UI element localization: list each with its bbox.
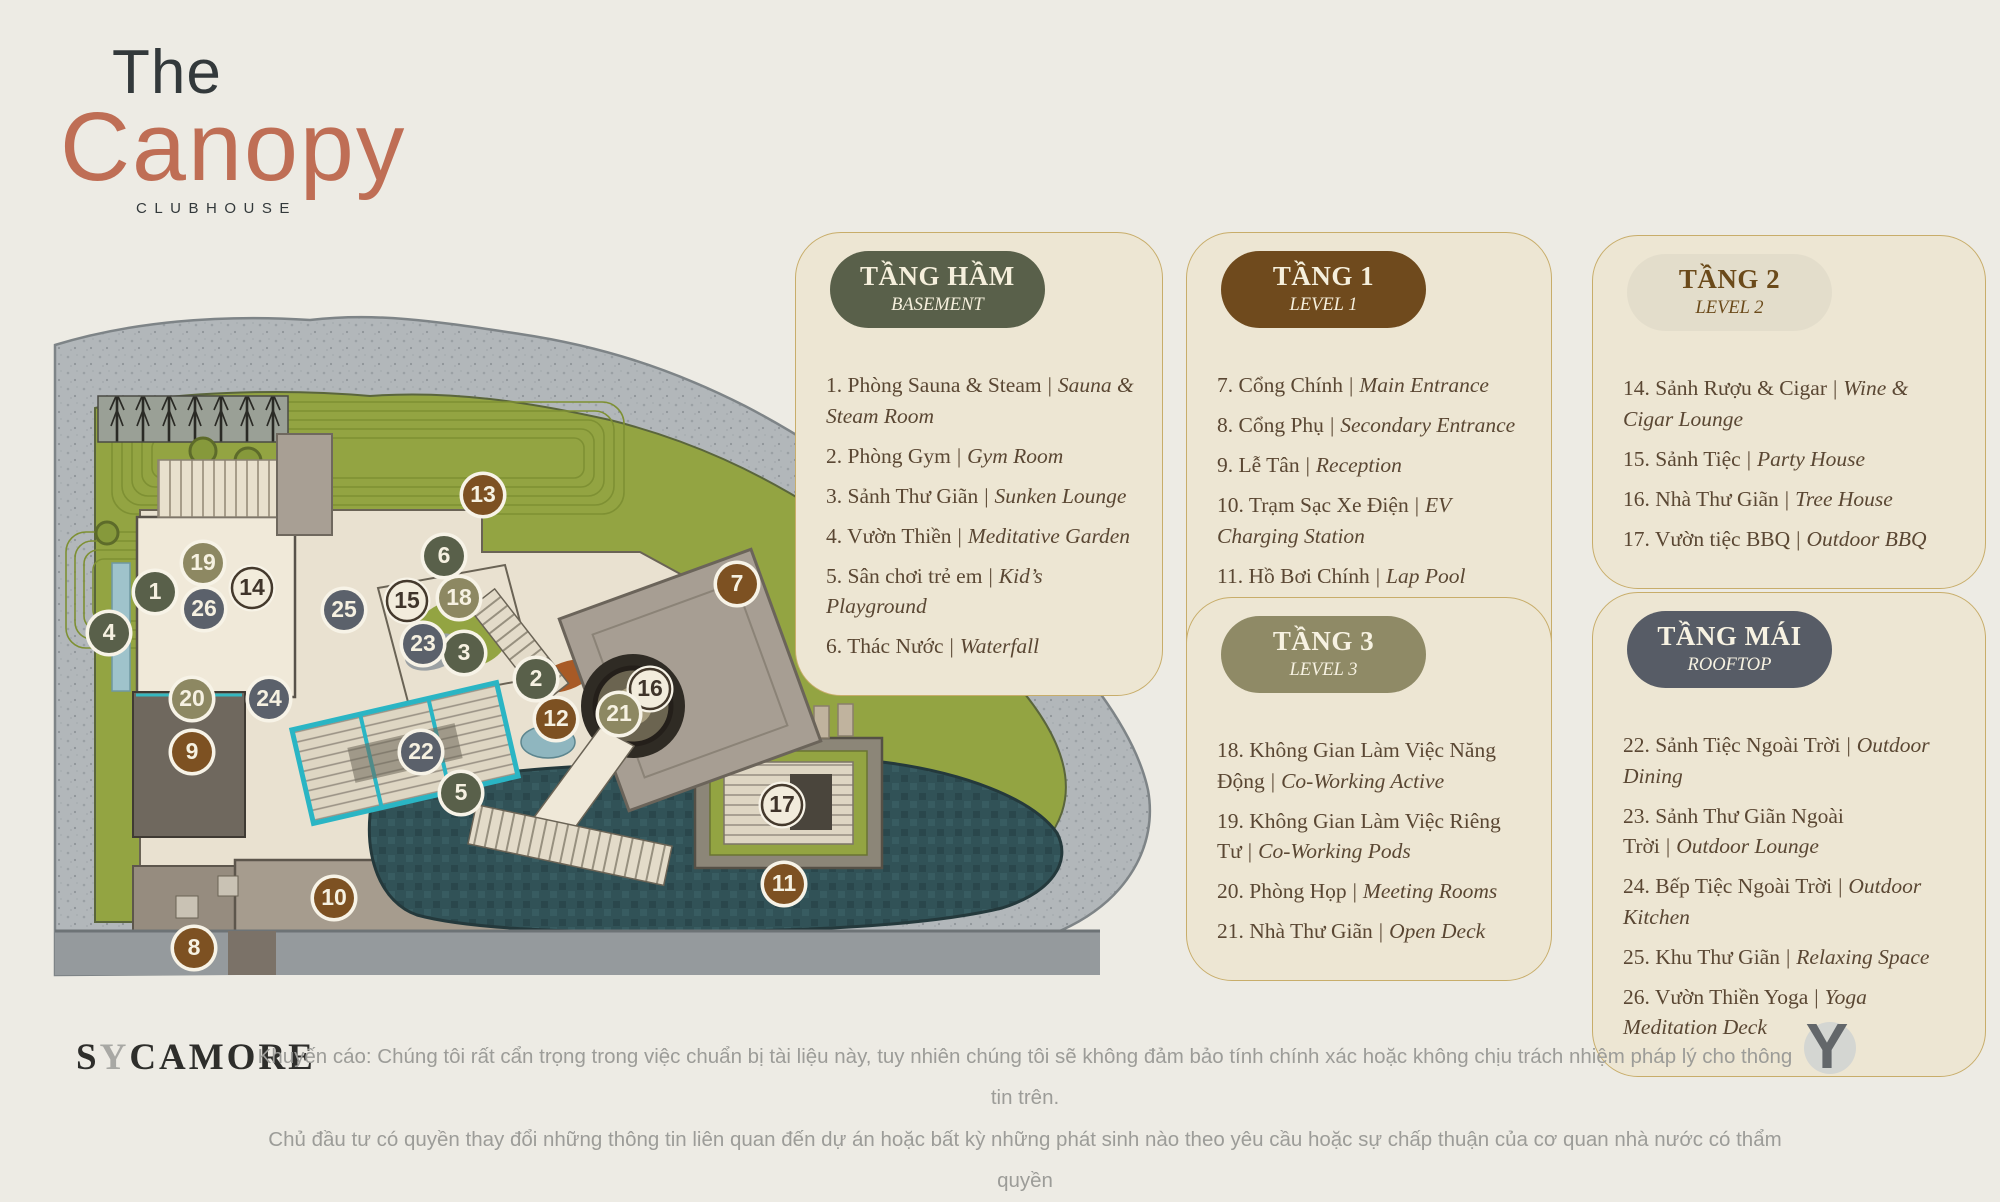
amenity-separator: | xyxy=(1660,834,1676,858)
amenity-name-en: Waterfall xyxy=(960,634,1039,658)
amenity-list: 18. Không Gian Làm Việc Năng Động|Co-Wor… xyxy=(1217,735,1527,947)
amenity-separator: | xyxy=(951,444,967,468)
amenity-separator: | xyxy=(1790,527,1806,551)
amenity-separator: | xyxy=(952,524,968,548)
amenity-name-vi: 22. Sảnh Tiệc Ngoài Trời xyxy=(1623,733,1840,757)
amenity-name-vi: 10. Trạm Sạc Xe Điện xyxy=(1217,493,1409,517)
amenity-name-en: Lap Pool xyxy=(1386,564,1465,588)
amenity-separator: | xyxy=(978,484,994,508)
amenity-separator: | xyxy=(1265,769,1281,793)
panel-header-level3: TẦNG 3LEVEL 3 xyxy=(1221,616,1426,693)
brand-letter: S xyxy=(76,1037,100,1078)
amenity-separator: | xyxy=(1347,879,1363,903)
amenity-name-vi: 17. Vườn tiệc BBQ xyxy=(1623,527,1790,551)
amenity-item: 24. Bếp Tiệc Ngoài Trời|Outdoor Kitchen xyxy=(1623,871,1961,932)
legend-panel-basement: TẦNG HẦMBASEMENT1. Phòng Sauna & Steam|S… xyxy=(795,232,1163,696)
amenity-separator: | xyxy=(1300,453,1316,477)
amenity-name-vi: 15. Sảnh Tiệc xyxy=(1623,447,1741,471)
disclaimer-line-1: Khuyến cáo: Chúng tôi rất cẩn trọng tron… xyxy=(250,1036,1800,1119)
disclaimer-line-2: Chủ đầu tư có quyền thay đổi những thông… xyxy=(250,1119,1800,1202)
amenity-item: 10. Trạm Sạc Xe Điện|EV Charging Station xyxy=(1217,490,1527,551)
amenity-item: 3. Sảnh Thư Giãn|Sunken Lounge xyxy=(826,481,1138,512)
amenity-name-en: Outdoor BBQ xyxy=(1806,527,1926,551)
amenity-separator: | xyxy=(1370,564,1386,588)
amenity-name-en: Open Deck xyxy=(1389,919,1485,943)
amenity-name-vi: 9. Lễ Tân xyxy=(1217,453,1300,477)
amenity-separator: | xyxy=(944,634,960,658)
amenity-name-vi: 14. Sảnh Rượu & Cigar xyxy=(1623,376,1827,400)
panel-title: TẦNG MÁI xyxy=(1657,621,1802,652)
amenity-name-vi: 7. Cổng Chính xyxy=(1217,373,1343,397)
amenity-separator: | xyxy=(1409,493,1425,517)
amenity-separator: | xyxy=(982,564,998,588)
corner-logo: Y xyxy=(1796,1008,1858,1092)
amenity-name-en: Outdoor Lounge xyxy=(1676,834,1819,858)
amenity-name-en: Sunken Lounge xyxy=(995,484,1127,508)
amenity-list: 14. Sảnh Rượu & Cigar|Wine & Cigar Loung… xyxy=(1623,373,1961,554)
amenity-item: 18. Không Gian Làm Việc Năng Động|Co-Wor… xyxy=(1217,735,1527,796)
amenity-name-vi: 21. Nhà Thư Giãn xyxy=(1217,919,1373,943)
amenity-name-en: Reception xyxy=(1316,453,1402,477)
amenity-item: 20. Phòng Họp|Meeting Rooms xyxy=(1217,876,1527,907)
panel-title: TẦNG 2 xyxy=(1657,264,1802,295)
amenity-separator: | xyxy=(1840,733,1856,757)
amenity-name-en: Co-Working Pods xyxy=(1258,839,1411,863)
panel-subtitle: LEVEL 2 xyxy=(1657,298,1802,319)
amenity-item: 7. Cổng Chính|Main Entrance xyxy=(1217,370,1527,401)
amenity-name-vi: 6. Thác Nước xyxy=(826,634,944,658)
amenity-item: 8. Cổng Phụ|Secondary Entrance xyxy=(1217,410,1527,441)
amenity-name-en: Gym Room xyxy=(967,444,1063,468)
amenity-item: 1. Phòng Sauna & Steam|Sauna & Steam Roo… xyxy=(826,370,1138,431)
amenity-name-vi: 26. Vườn Thiền Yoga xyxy=(1623,985,1808,1009)
corner-logo-y-icon: Y xyxy=(1796,1008,1858,1085)
panel-header-level2: TẦNG 2LEVEL 2 xyxy=(1627,254,1832,331)
amenity-name-vi: 25. Khu Thư Giãn xyxy=(1623,945,1780,969)
amenity-separator: | xyxy=(1741,447,1757,471)
amenity-name-vi: 16. Nhà Thư Giãn xyxy=(1623,487,1779,511)
amenity-list: 1. Phòng Sauna & Steam|Sauna & Steam Roo… xyxy=(826,370,1138,662)
amenity-name-en: Main Entrance xyxy=(1359,373,1489,397)
amenity-name-vi: 24. Bếp Tiệc Ngoài Trời xyxy=(1623,874,1832,898)
amenity-name-en: Meeting Rooms xyxy=(1363,879,1497,903)
amenity-item: 17. Vườn tiệc BBQ|Outdoor BBQ xyxy=(1623,524,1961,555)
amenity-name-en: Meditative Garden xyxy=(968,524,1130,548)
amenity-name-vi: 8. Cổng Phụ xyxy=(1217,413,1324,437)
amenity-item: 4. Vườn Thiền|Meditative Garden xyxy=(826,521,1138,552)
amenity-name-en: Secondary Entrance xyxy=(1340,413,1515,437)
disclaimer: Khuyến cáo: Chúng tôi rất cẩn trọng tron… xyxy=(250,1036,1800,1202)
legend-panel-rooftop: TẦNG MÁIROOFTOP22. Sảnh Tiệc Ngoài Trời|… xyxy=(1592,592,1986,1077)
panel-header-level1: TẦNG 1LEVEL 1 xyxy=(1221,251,1426,328)
amenity-item: 22. Sảnh Tiệc Ngoài Trời|Outdoor Dining xyxy=(1623,730,1961,791)
amenity-name-vi: 11. Hồ Bơi Chính xyxy=(1217,564,1370,588)
amenity-name-vi: 4. Vườn Thiền xyxy=(826,524,952,548)
amenity-separator: | xyxy=(1042,373,1058,397)
panel-title: TẦNG 1 xyxy=(1251,261,1396,292)
amenity-separator: | xyxy=(1779,487,1795,511)
panel-subtitle: BASEMENT xyxy=(860,295,1015,316)
amenity-name-vi: 3. Sảnh Thư Giãn xyxy=(826,484,978,508)
panel-subtitle: LEVEL 3 xyxy=(1251,660,1396,681)
amenity-item: 11. Hồ Bơi Chính|Lap Pool xyxy=(1217,561,1527,592)
amenity-separator: | xyxy=(1343,373,1359,397)
brand-letter-y: Y xyxy=(100,1037,130,1078)
amenity-item: 9. Lễ Tân|Reception xyxy=(1217,450,1527,481)
amenity-item: 6. Thác Nước|Waterfall xyxy=(826,631,1138,662)
amenity-item: 16. Nhà Thư Giãn|Tree House xyxy=(1623,484,1961,515)
panel-title: TẦNG HẦM xyxy=(860,261,1015,292)
amenity-separator: | xyxy=(1242,839,1258,863)
legend-panels: TẦNG HẦMBASEMENT1. Phòng Sauna & Steam|S… xyxy=(0,0,2000,1125)
panel-title: TẦNG 3 xyxy=(1251,626,1396,657)
panel-header-rooftop: TẦNG MÁIROOFTOP xyxy=(1627,611,1832,688)
amenity-list: 22. Sảnh Tiệc Ngoài Trời|Outdoor Dining2… xyxy=(1623,730,1961,1043)
amenity-separator: | xyxy=(1373,919,1389,943)
amenity-item: 5. Sân chơi trẻ em|Kid’s Playground xyxy=(826,561,1138,622)
amenity-name-vi: 2. Phòng Gym xyxy=(826,444,951,468)
amenity-name-vi: 20. Phòng Họp xyxy=(1217,879,1347,903)
amenity-name-en: Co-Working Active xyxy=(1281,769,1444,793)
legend-panel-level3: TẦNG 3LEVEL 318. Không Gian Làm Việc Năn… xyxy=(1186,597,1552,981)
amenity-item: 26. Vườn Thiền Yoga|Yoga Meditation Deck xyxy=(1623,982,1961,1043)
panel-subtitle: LEVEL 1 xyxy=(1251,295,1396,316)
amenity-item: 25. Khu Thư Giãn|Relaxing Space xyxy=(1623,942,1961,973)
amenity-item: 23. Sảnh Thư Giãn Ngoài Trời|Outdoor Lou… xyxy=(1623,801,1961,862)
amenity-item: 19. Không Gian Làm Việc Riêng Tư|Co-Work… xyxy=(1217,806,1527,867)
panel-subtitle: ROOFTOP xyxy=(1657,655,1802,676)
panel-header-basement: TẦNG HẦMBASEMENT xyxy=(830,251,1045,328)
amenity-name-en: Relaxing Space xyxy=(1796,945,1929,969)
amenity-separator: | xyxy=(1827,376,1843,400)
amenity-name-en: Party House xyxy=(1757,447,1865,471)
legend-panel-level2: TẦNG 2LEVEL 214. Sảnh Rượu & Cigar|Wine … xyxy=(1592,235,1986,589)
amenity-separator: | xyxy=(1780,945,1796,969)
amenity-separator: | xyxy=(1832,874,1848,898)
amenity-item: 15. Sảnh Tiệc|Party House xyxy=(1623,444,1961,475)
amenity-name-vi: 1. Phòng Sauna & Steam xyxy=(826,373,1042,397)
amenity-separator: | xyxy=(1808,985,1824,1009)
amenity-item: 21. Nhà Thư Giãn|Open Deck xyxy=(1217,916,1527,947)
amenity-name-en: Tree House xyxy=(1795,487,1893,511)
amenity-item: 14. Sảnh Rượu & Cigar|Wine & Cigar Loung… xyxy=(1623,373,1961,434)
amenity-separator: | xyxy=(1324,413,1340,437)
amenity-item: 2. Phòng Gym|Gym Room xyxy=(826,441,1138,472)
amenity-name-vi: 5. Sân chơi trẻ em xyxy=(826,564,982,588)
